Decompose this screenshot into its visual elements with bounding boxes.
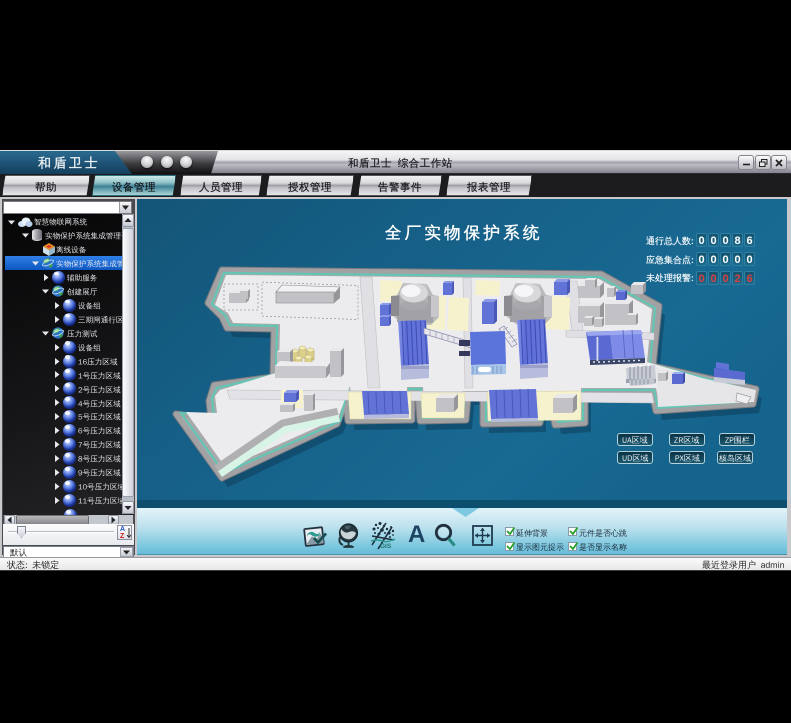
svg-text:GIS: GIS (380, 543, 392, 550)
